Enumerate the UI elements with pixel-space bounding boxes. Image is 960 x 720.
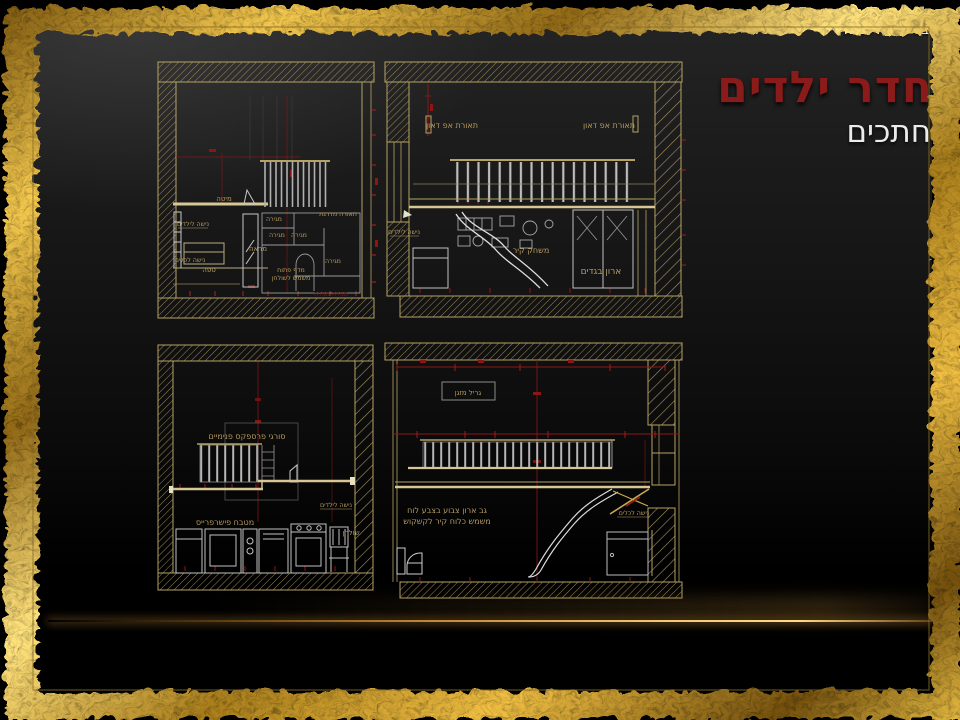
wall-game-toys [458,216,553,248]
play-kitchen [176,524,349,573]
section-top-left: מיטה נישה לילדים מראה ספה נישה לכלים תאו… [158,62,378,318]
walls [385,343,682,598]
label-perspex-bars: סורגי פרספקס פנימיים [209,432,286,441]
label-open-shelf-2: משמש לשולחן [272,275,311,282]
label-bed: מיטה [216,195,232,203]
light-streak [48,620,932,622]
walls [158,345,373,590]
label-wall-game: משחק קיר [513,246,550,255]
dim-mark [430,104,433,111]
bed-desk-area [173,190,268,287]
label-tools-niche: נישה לכלים [619,510,650,517]
label-board-1: גב ארון צבוע בצבע לוח [407,506,488,515]
side-cabinet [413,248,448,288]
label-drawers-red: מגירה מגירה [314,291,348,298]
label-updown-light: תאורת אפ דאון [426,121,478,130]
label-updown-light: תאורת אפ דאון [583,121,635,130]
label-small-niche: נישה לכלים [175,257,206,264]
light-streak-glow [210,596,932,622]
beanbag-chair [397,548,422,574]
label-mirror: מראה [249,245,267,253]
blessing-text: בסיעתא דשמיא [844,23,929,38]
label-drawer: מגירה [325,258,341,265]
label-open-shelf-1: מדף פתוח [277,267,305,274]
loft-floor [395,468,650,487]
label-ac-grill: גריל מזגן [455,389,482,397]
low-cabinet [607,532,648,575]
page-subtitle: חתכים [846,114,931,150]
faint-grid [250,96,292,160]
slide: מיטה נישה לילדים מראה ספה נישה לכלים תאו… [0,0,960,720]
dim-mark [255,398,261,401]
label-kids-niche: נישה לילדים [388,229,420,236]
section-bottom-right: גריל מזגן גב ארון צבוע בצבע לוח משמש כלו… [385,343,682,598]
railing [197,444,297,482]
label-kids-niche: נישה לילדים [177,221,209,228]
section-bottom-left: סורגי פרספקס פנימיים נישה לילדים מטבח פי… [158,345,373,590]
label-drawer: מגירה [266,216,282,223]
slide-curve [528,489,618,577]
loft-railing [420,440,615,468]
label-sofa: ספה [202,266,216,274]
section-top-right: תאורת אפ דאון תאורת אפ דאון נישה לילדים … [385,62,686,317]
label-table: שולחן [342,529,359,537]
loft-structure [403,160,655,218]
label-drawer: מגירה [269,232,285,239]
label-drawer: מגירה [291,232,307,239]
page-title: חדר ילדים [717,62,933,113]
label-kids-niche: נישה לילדים [320,502,352,509]
label-wardrobe: ארון בגדים [581,267,622,277]
label-kitchen: מטבח פישרפרייס [196,518,254,527]
railing [260,161,330,207]
label-stepped-light: תאורה מדרגת [319,211,357,218]
label-board-2: משמש כלוח קיר לקשקוש [403,517,490,526]
